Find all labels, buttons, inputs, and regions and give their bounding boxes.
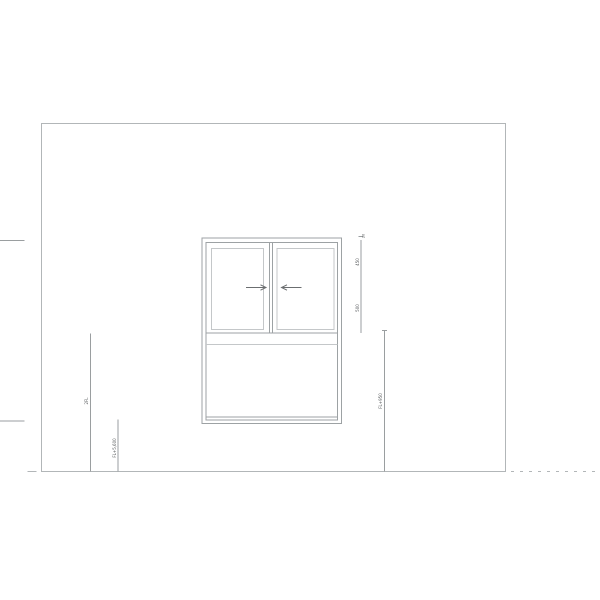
dimension-upper-segment-label: 450 [356,258,360,266]
drawing-canvas: 20 450 500 2FL FL+5,600 FL+950 [0,0,600,600]
dimension-top-offset-label: 20 [362,234,366,238]
level-tick-arrows [24,239,30,422]
sill-level-arrow-icon [24,420,30,423]
window-group [202,238,342,424]
wall-group [28,124,600,472]
dimension-group [359,237,364,334]
window-outer-frame [202,238,342,424]
level-tick-group [0,241,25,422]
window-inner-frame [206,243,338,421]
leader-label-sill-left: FL+5,600 [113,438,117,457]
leader-group [91,331,388,472]
leader-label-wall-left: 2FL [85,397,89,404]
left-sash-glass [212,249,264,330]
window-light-group [206,249,338,345]
elevation-linework [0,0,600,600]
wall-outline [42,124,506,472]
dimension-lower-segment-label: 500 [356,304,360,312]
sash-arrow-group [246,285,302,290]
leader-label-window-right: FL+950 [379,393,383,409]
head-level-arrow-icon [24,239,30,242]
